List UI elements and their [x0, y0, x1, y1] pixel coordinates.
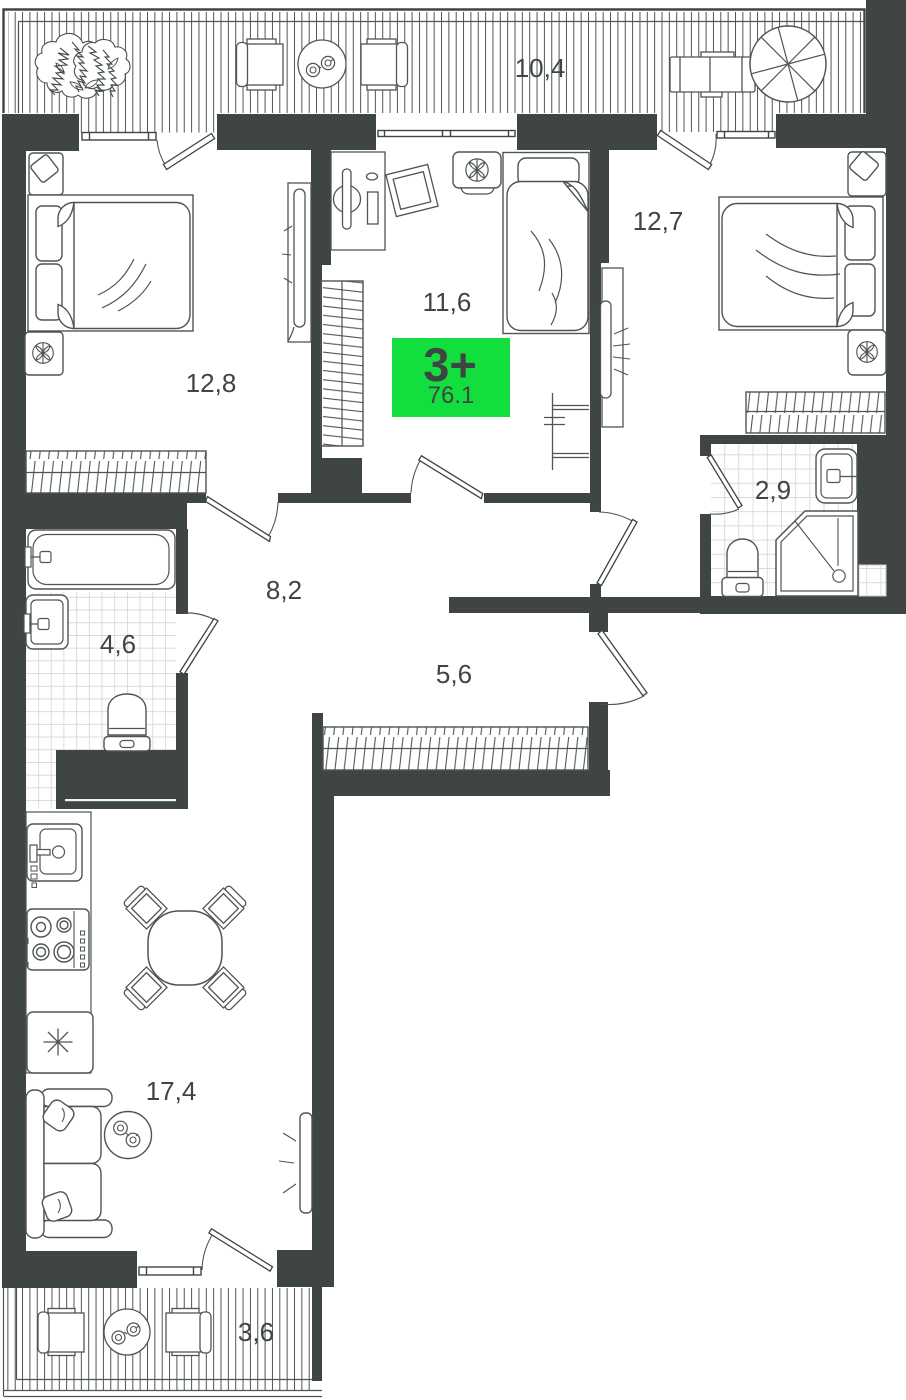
svg-text:3,6: 3,6 — [238, 1317, 274, 1347]
svg-text:12,8: 12,8 — [186, 368, 237, 398]
svg-text:17,4: 17,4 — [146, 1076, 197, 1106]
svg-text:8,2: 8,2 — [266, 575, 302, 605]
svg-text:5,6: 5,6 — [436, 659, 472, 689]
svg-text:10,4: 10,4 — [515, 53, 566, 83]
svg-text:2,9: 2,9 — [755, 475, 791, 505]
svg-text:11,6: 11,6 — [423, 287, 472, 317]
svg-text:4,6: 4,6 — [100, 629, 136, 659]
svg-text:76.1: 76.1 — [428, 382, 475, 409]
svg-text:12,7: 12,7 — [633, 206, 684, 236]
